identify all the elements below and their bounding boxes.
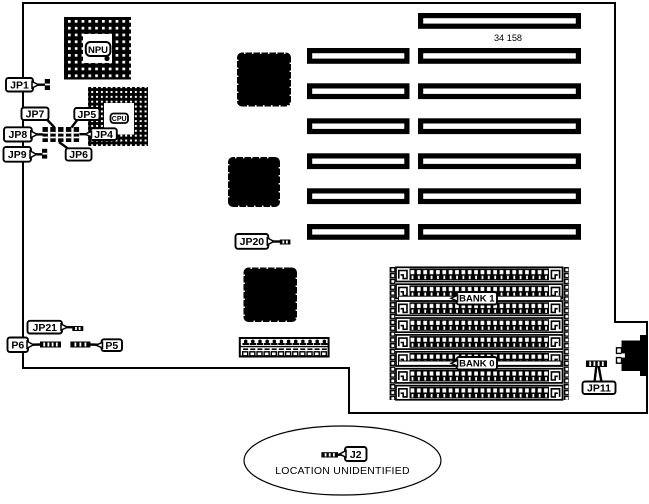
svg-text:JP9: JP9: [8, 149, 27, 161]
svg-text:JP20: JP20: [240, 236, 265, 248]
svg-text:JP4: JP4: [94, 129, 113, 141]
svg-text:JP21: JP21: [32, 322, 57, 334]
svg-text:JP8: JP8: [9, 129, 28, 141]
svg-text:BANK 1: BANK 1: [459, 294, 495, 305]
svg-text:J2: J2: [350, 449, 362, 461]
svg-text:JP1: JP1: [10, 80, 29, 92]
svg-text:NPU: NPU: [88, 45, 108, 56]
svg-text:34 158: 34 158: [494, 33, 522, 43]
svg-text:BANK 0: BANK 0: [459, 359, 494, 370]
svg-text:JP7: JP7: [26, 109, 45, 121]
svg-text:JP6: JP6: [69, 149, 88, 161]
svg-text:CPU: CPU: [112, 116, 127, 123]
svg-text:P6: P6: [11, 340, 24, 352]
svg-text:JP5: JP5: [78, 109, 97, 121]
svg-text:JP11: JP11: [587, 383, 611, 395]
svg-text:P5: P5: [105, 340, 118, 352]
svg-text:LOCATION UNIDENTIFIED: LOCATION UNIDENTIFIED: [275, 465, 410, 477]
